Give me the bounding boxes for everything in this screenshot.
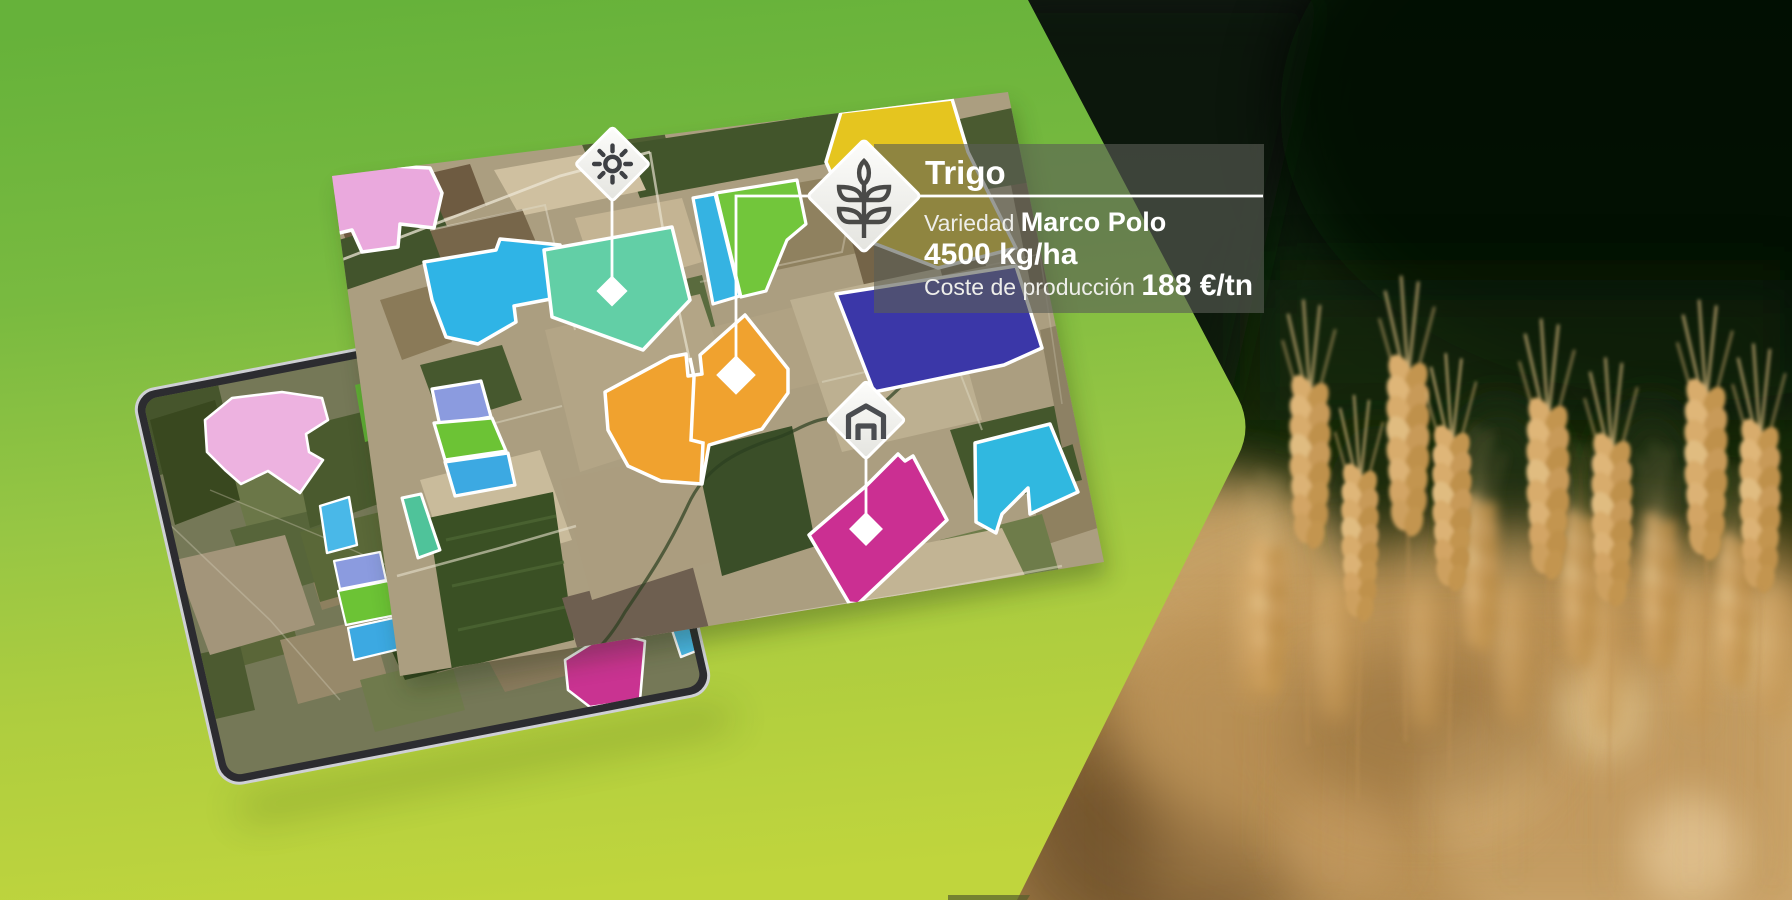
svg-text:Trigo: Trigo [925,154,1006,191]
svg-text:Coste de producción 188 €/tn: Coste de producción 188 €/tn [924,269,1253,302]
svg-text:Variedad Marco Polo: Variedad Marco Polo [924,207,1166,237]
svg-text:4500 kg/ha: 4500 kg/ha [924,238,1078,271]
